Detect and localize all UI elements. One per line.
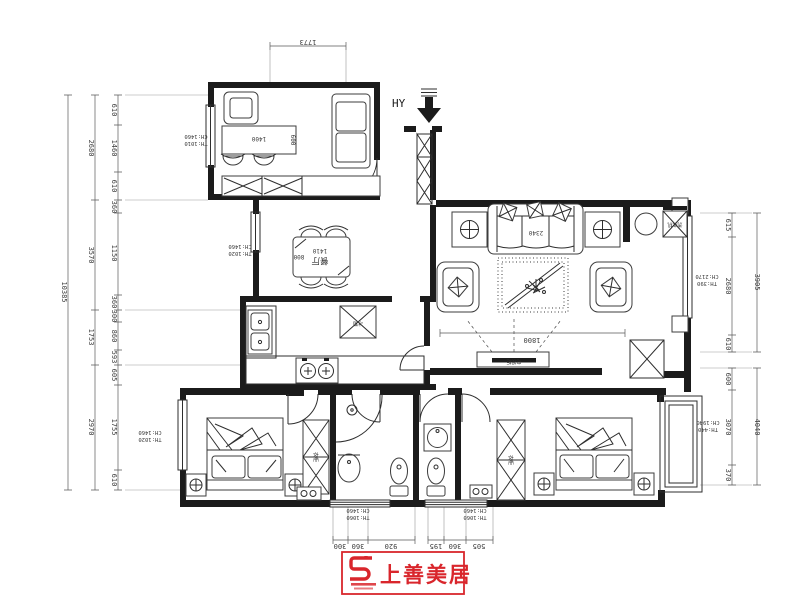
dim-l-c2: 3570: [87, 247, 95, 264]
window-label-w5: TH:440CH:1940: [696, 419, 719, 432]
desk-chair: [252, 154, 276, 165]
dim-l-c3c: 593: [110, 351, 118, 364]
living-width-value: 1800: [524, 336, 541, 344]
dim-r-c2a: 600: [724, 373, 732, 386]
desk-chair: [221, 154, 245, 165]
dim-l-c1c: 610: [110, 180, 118, 193]
w3-th: TH:1020: [138, 436, 161, 442]
dining-chair: [299, 277, 323, 288]
armchair: [437, 262, 479, 312]
dim-l-c4a: 605: [110, 369, 118, 382]
dims-bottom: 300 360 920 195 360 505: [333, 536, 493, 550]
w7-th: TH:1060: [463, 514, 486, 520]
w6-ch: CH:1460: [346, 507, 369, 513]
bedroom-right: 衣柜: [470, 418, 654, 500]
drawer-unit: [297, 487, 321, 500]
nightstand: [186, 474, 206, 496]
window-label-w7: TH:1060CH:1460: [463, 507, 486, 520]
dim-l-c4c: 610: [110, 474, 118, 487]
w6-th: TH:1060: [346, 514, 369, 520]
bath2-bottom-window: [425, 500, 487, 507]
dim-b-c: 920: [385, 542, 398, 550]
dining-chair: [299, 226, 323, 237]
tv-label: 电视柜: [506, 358, 521, 365]
toilet: [427, 458, 445, 496]
tv-cabinet: 电视柜: [467, 318, 561, 367]
study-room: [221, 92, 380, 196]
dim-l-c3a: 300: [110, 310, 118, 323]
dim-b-a: 300: [334, 542, 347, 550]
washer-label: 洗衣机: [667, 221, 682, 228]
plant: [526, 279, 546, 294]
logo: 上善美居: [342, 552, 472, 594]
fridge-label: 冰箱: [353, 320, 363, 327]
bathroom-1: [336, 394, 408, 496]
dining-area: 餐厅 1410 800: [293, 226, 350, 288]
kitchen: 冰箱: [246, 306, 424, 384]
dim-l-c3: 1753: [87, 329, 95, 346]
dims-right: 615 2680 610 600 3070 370 3905 4040: [724, 213, 761, 485]
sofa-width-dim: 2340: [528, 229, 543, 236]
dim-r-c2c: 370: [724, 469, 732, 482]
dim-r-c1a: 615: [724, 219, 732, 232]
entry-label: HY: [392, 97, 406, 110]
sofa: 2340: [488, 202, 583, 254]
bed: [556, 418, 632, 490]
w5-th: TH:440: [698, 426, 718, 432]
dim-l-c2a: 360: [110, 201, 118, 214]
table-length-dim: 1410: [312, 247, 327, 254]
dim-l-c1b: 1460: [110, 140, 118, 157]
drawer-unit: [470, 485, 492, 498]
w2-th: TH:1020: [228, 250, 251, 256]
dim-r-c2b: 3070: [724, 419, 732, 436]
living-room: 2340 1800 电视柜: [437, 202, 632, 367]
desk-length-dim: 1400: [251, 135, 266, 142]
sink: [338, 454, 360, 482]
w4-th: TH:390: [697, 280, 717, 286]
floor-plan-svg: 餐厅 1410 800 1400 600 冰箱 2340: [0, 0, 800, 600]
bath1-bottom-window: [330, 500, 390, 507]
dim-l-c4: 2970: [87, 419, 95, 436]
dining-room-label: 餐厅: [311, 255, 329, 265]
dining-chair: [324, 226, 348, 237]
wardrobe: 衣柜: [303, 420, 329, 494]
toilet: [390, 458, 408, 496]
armchair: [590, 262, 632, 312]
dims-left: 610 1460 610 360 1150 360 300 860 593 60…: [60, 95, 122, 490]
dim-l-overall: 10385: [60, 281, 68, 302]
wardrobe-label: 衣柜: [507, 455, 514, 465]
w7-ch: CH:1460: [463, 507, 486, 513]
dim-l-c2b: 1150: [110, 245, 118, 262]
bay-window: [660, 396, 702, 492]
floor-plan-canvas: 餐厅 1410 800 1400 600 冰箱 2340: [0, 0, 800, 600]
table-depth-dim: 800: [293, 253, 304, 260]
north-arrow-icon: [417, 108, 441, 123]
entry-arrow: HY: [392, 89, 441, 123]
w1-ch: CH:1460: [184, 133, 207, 139]
dim-l-c1a: 610: [110, 104, 118, 117]
dim-r-c1: 3905: [753, 274, 761, 291]
logo-text: 上善美居: [380, 563, 472, 587]
nightstand: [634, 473, 654, 495]
living-width-dim: 1800: [440, 329, 625, 344]
dim-l-c3b: 860: [110, 330, 118, 343]
sink: [424, 424, 451, 451]
stove: [296, 358, 338, 383]
end-table: [585, 212, 620, 247]
window-label-w4: TH:390CH:2170: [695, 273, 718, 286]
dims-top: 1773: [270, 38, 346, 50]
wardrobe: 衣柜: [497, 420, 525, 500]
bedroom-left: 衣柜: [186, 418, 329, 500]
end-table: [452, 212, 487, 247]
dim-l-c4b: 1755: [110, 419, 118, 436]
dim-b-f: 505: [473, 542, 486, 550]
dim-b-d: 195: [430, 542, 443, 550]
study-wardrobe: [222, 176, 380, 196]
rug: [498, 258, 568, 312]
bathroom-2: [424, 424, 451, 496]
window-label-w3: TH:1020CH:1460: [138, 429, 161, 442]
bedroom-left-window: [178, 400, 187, 470]
w1-th: TH:1010: [184, 140, 207, 146]
laundry-nook: 洗衣机: [635, 206, 687, 237]
w5-ch: CH:1940: [696, 419, 719, 425]
dim-b-e: 360: [449, 542, 462, 550]
elevator-shaft: [630, 340, 664, 378]
dim-r-c2: 4040: [753, 419, 761, 436]
window-label-w1: TH:1010CH:1460: [184, 133, 207, 146]
dim-l-c2c: 360: [110, 296, 118, 309]
w4-ch: CH:2170: [695, 273, 718, 279]
wardrobe-label: 衣柜: [312, 452, 319, 462]
dim-b-b: 360: [352, 542, 365, 550]
w2-ch: CH:1460: [228, 243, 251, 249]
study-sofa: [332, 94, 370, 168]
fridge: 冰箱: [340, 306, 376, 338]
window-label-w2: TH:1020CH:1460: [228, 243, 251, 256]
bed: [207, 418, 283, 490]
armchair: [224, 92, 258, 124]
dining-chair: [324, 277, 348, 288]
dim-top: 1773: [300, 38, 317, 46]
kitchen-sink: [248, 310, 272, 354]
entry-shaft: [417, 134, 432, 204]
dim-l-c1: 2680: [87, 140, 95, 157]
dim-r-c1b: 2680: [724, 278, 732, 295]
nightstand: [534, 473, 554, 495]
window-label-w6: TH:1060CH:1460: [346, 507, 369, 520]
logo-mark-icon: [350, 556, 372, 579]
w3-ch: CH:1460: [138, 429, 161, 435]
dim-r-c1c: 610: [724, 338, 732, 351]
desk-depth-dim: 600: [289, 135, 296, 146]
